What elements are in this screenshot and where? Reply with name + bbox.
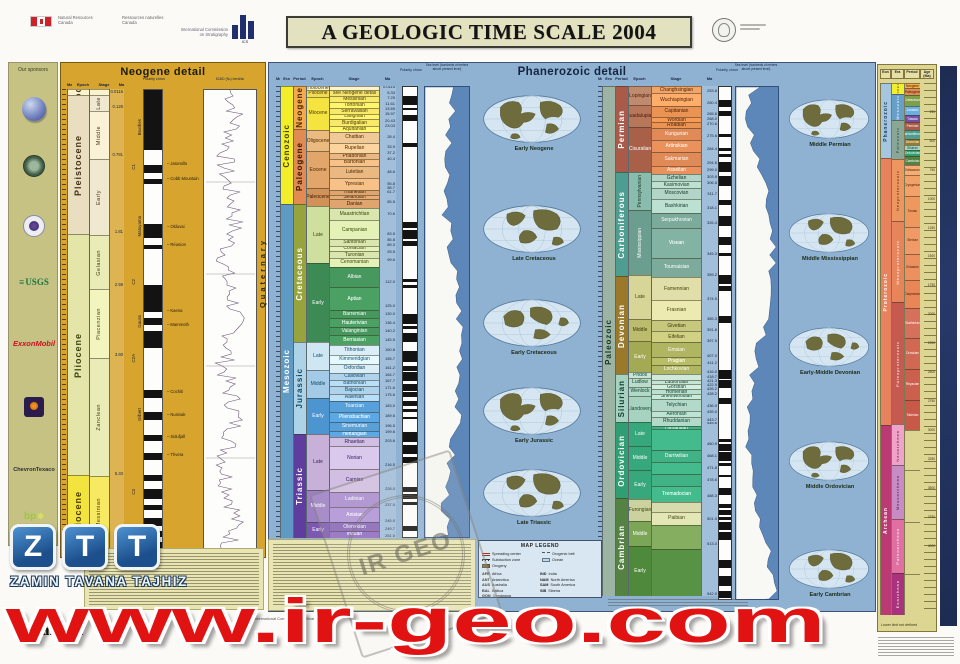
- stage-cell-Sinemurian: Sinemurian: [330, 422, 379, 431]
- polarity-stripe: [719, 463, 731, 466]
- globe-map: [788, 326, 870, 368]
- hdr-stage: Stage: [651, 76, 701, 81]
- epoch-cell-Guadalupian: Guadalupian: [629, 105, 651, 126]
- age-label: 501.0: [702, 508, 718, 520]
- polarity-black-interval: [144, 318, 162, 325]
- chron-Gilbert: Gilbert: [137, 408, 142, 421]
- sponsor-IUGS-logo: [9, 97, 59, 121]
- age-label: 299.0: [702, 165, 718, 172]
- ztt-letter: Z: [24, 530, 42, 564]
- epoch-cell-Lopingian: Lopingian: [629, 86, 651, 105]
- sponsor-ChevronTexaco-logo: ChevronTexaco: [9, 467, 59, 473]
- paleogeography-globe: [478, 298, 586, 353]
- age-tick-2500: 2500: [928, 370, 935, 374]
- age-label: 294.6: [702, 151, 718, 165]
- polarity-stripe: [719, 560, 731, 567]
- age-label: 155.7: [380, 352, 396, 361]
- polarity-stripe: [403, 285, 417, 288]
- age-tick-1000: 1000: [928, 197, 935, 201]
- age-label: 265.8: [702, 105, 718, 116]
- stage-cell-unnamed: [652, 525, 701, 549]
- event-Réunion: Réunion: [167, 242, 186, 247]
- hdr-ma2: Ma: [379, 76, 396, 81]
- stage-cell-Norian: Norian: [330, 446, 379, 469]
- age-label: 99.6: [380, 254, 396, 262]
- age-label: 189.6: [380, 408, 396, 418]
- globe-map: [478, 468, 586, 518]
- era-cell-Mesoarchean: Mesoarchean: [892, 465, 904, 519]
- period-cell-Cryogenian: Cryogenian: [905, 175, 920, 196]
- geological-survey-text: [740, 24, 766, 32]
- poster-title: A GEOLOGIC TIME SCALE 2004: [322, 20, 657, 45]
- hdr-period: Period: [904, 69, 920, 79]
- polarity-stripe: [403, 409, 417, 412]
- age-label: 33.9: [380, 139, 396, 149]
- paleogeography-globe: [788, 326, 870, 373]
- polarity-stripe: [403, 366, 417, 371]
- summary-era-column: CenozoicMesozoicPaleozoicNeoproterozoicM…: [891, 83, 904, 615]
- chron-label-C2: C2: [131, 279, 136, 285]
- period-cell-Calymmian: Calymmian: [905, 280, 920, 308]
- paleogeography-globe: [478, 204, 586, 259]
- ics-abbr: ICS: [232, 39, 258, 44]
- stage-cell-Aptian: Aptian: [330, 287, 379, 310]
- age-tick-750: 750: [930, 168, 935, 172]
- cenozoic-mesozoic-column-group: CenozoicMesozoicNeogenePaleogeneCretaceo…: [276, 86, 396, 538]
- period-cell-Orosirian: Orosirian: [905, 338, 920, 369]
- hdr-period: Period: [293, 76, 306, 81]
- polarity-stripe: [719, 154, 731, 157]
- sealevel-curve-2: [735, 86, 779, 600]
- epoch-cell-Eocene: Eocene: [307, 151, 329, 188]
- stage-cell-Tithonian: Tithonian: [330, 345, 379, 355]
- stage-cell-Toarcian: Toarcian: [330, 401, 379, 412]
- square-icon: [24, 397, 44, 417]
- period-cell-Rhyacian: Rhyacian: [905, 369, 920, 400]
- epoch-cell-Late: Late: [307, 206, 329, 263]
- epoch-cell-Middle: Middle: [307, 370, 329, 397]
- g-right-age-column: 253.8260.4265.8268.0270.6275.6284.4294.6…: [701, 86, 718, 596]
- agency-name-en: Natural Resources Canada: [58, 15, 93, 26]
- neogene-panel-title: Neogene detail: [61, 63, 265, 78]
- period-cell-Tonian: Tonian: [905, 196, 920, 227]
- polarity-barcode-2: [718, 86, 732, 600]
- hdr-epoch: Epoch: [628, 76, 651, 81]
- stage-cell-Chattian: Chattian: [330, 132, 379, 143]
- age-label: 112.0: [380, 262, 396, 284]
- stage-cell-Burdigalian: Burdigalian: [330, 119, 379, 126]
- stage-cell-Late: Late: [90, 95, 109, 111]
- g-right-era-column: Paleozoic: [602, 86, 615, 596]
- neogene-curve-header: δ18O (‰) benthic: [203, 77, 257, 81]
- polarity-stripe: [719, 488, 731, 496]
- age-tick-250: 250: [930, 110, 935, 114]
- epoch-cell-Middle: Middle: [629, 521, 651, 546]
- polarity-stripe: [403, 279, 417, 283]
- polarity-stripe: [403, 96, 417, 105]
- era-cell-Eoarchean: Eoarchean: [892, 573, 904, 615]
- globe-map: [788, 212, 870, 254]
- lower-limit-note: Lower limit not defined: [881, 623, 921, 627]
- stage-cell-Asselian: Asselian: [652, 166, 701, 173]
- col-header-stage: Stage: [94, 82, 114, 87]
- paleogeography-globe: [788, 212, 870, 259]
- stage-cell-Albian: Albian: [330, 267, 379, 288]
- col-header-epoch: Epoch: [72, 82, 94, 87]
- globe-icon: [22, 97, 46, 121]
- epoch-cell-Mississippian: Mississippian: [629, 210, 651, 275]
- polarity-stripe: [719, 100, 731, 107]
- age-label: 175.6: [380, 390, 396, 397]
- age-label: 28.4: [380, 128, 396, 139]
- age-label: 20.43: [380, 116, 396, 123]
- seal-dark-icon: [23, 155, 45, 177]
- stage-cell-Bashkirian: Bashkirian: [652, 199, 701, 213]
- age-label: 48.6: [380, 161, 396, 174]
- polarity-stripe: [403, 401, 417, 406]
- polarity-stripe: [719, 200, 731, 206]
- polarity-stripe: [719, 134, 731, 137]
- chron-Brunhes: Brunhes: [137, 119, 142, 135]
- stage-cell-Tremadocian: Tremadocian: [652, 486, 701, 502]
- epoch-cell-Early: Early: [629, 470, 651, 498]
- age-label: 471.8: [702, 458, 718, 470]
- sponsor-USGS-logo: USGS: [9, 277, 59, 287]
- stage-cell-Zanclean: Zanclean: [90, 358, 109, 476]
- age-label: 164.7: [380, 370, 396, 377]
- stage-cell-Pragian: Pragian: [652, 357, 701, 364]
- canada-flag-icon: [30, 16, 52, 27]
- hdr-ma2: Ma: [701, 76, 718, 81]
- stage-cell-Lochkovian: Lochkovian: [652, 365, 701, 374]
- event-Jaramillo: Jaramillo: [167, 161, 187, 166]
- ztt-tile-t2: T: [114, 524, 160, 570]
- paleogeography-globe: [788, 440, 870, 487]
- polarity-black-interval: [144, 179, 162, 184]
- summary-columns: PhanerozoicProterozoicArcheanCenozoicMes…: [880, 83, 920, 615]
- epoch-cell-Furongian: Furongian: [629, 499, 651, 521]
- hdr-age: Age (Ma): [920, 69, 934, 79]
- age-tick-2000: 2000: [928, 312, 935, 316]
- era-cell-Cenozoic: Cenozoic: [281, 86, 293, 204]
- g-left-era-column: CenozoicMesozoic: [280, 86, 293, 538]
- age-label: 253.8: [702, 86, 718, 93]
- age-label: 326.4: [702, 210, 718, 225]
- period-cell-Stenian: Stenian: [905, 227, 920, 254]
- isotope-curve-box: [203, 89, 257, 549]
- age-label: 407.0: [702, 343, 718, 358]
- age-label: 171.6: [380, 383, 396, 390]
- globe-map: [788, 98, 870, 140]
- isotope-curve-plot: [204, 90, 257, 549]
- sponsor-bp-logo: bp: [9, 511, 59, 522]
- map-legend-symbols: Spreading centerOrogenic beltSubduction …: [482, 551, 598, 569]
- age-tick-3500: 3500: [928, 486, 935, 490]
- stage-cell-Paibian: Paibian: [652, 512, 701, 524]
- era-cell-Mesoproterozoic: Mesoproterozoic: [892, 221, 904, 302]
- stage-cell-Valanginian: Valanginian: [330, 327, 379, 335]
- epoch-cell-Pliocene: Pliocene: [307, 90, 329, 97]
- legend-symbol-ocean: Ocean: [542, 557, 598, 563]
- polarity-stripe: [719, 176, 731, 186]
- hdr-epoch: Epoch: [306, 76, 329, 81]
- summary-period-column: NeogenePaleogeneCretaceousJurassicTriass…: [904, 83, 920, 615]
- polarity-black-interval: [144, 285, 162, 312]
- stage-cell-unnamed: [652, 429, 701, 449]
- era-cell-Paleozoic: Paleozoic: [603, 86, 615, 596]
- hdr-period: Period: [615, 76, 628, 81]
- age-label: 303.9: [702, 172, 718, 179]
- globe-label: Early Jurassic: [478, 438, 590, 444]
- epoch-cell-Early: Early: [307, 263, 329, 342]
- stage-cell-Capitanian: Capitanian: [652, 106, 701, 117]
- stage-cell-Ypresian: Ypresian: [330, 178, 379, 190]
- polarity-stripe: [719, 162, 731, 172]
- period-cell-Devonian: Devonian: [616, 276, 628, 374]
- ma-tick-scale: [62, 89, 66, 549]
- stage-cell-Gelasian: Gelasian: [90, 235, 109, 289]
- event-Nunivak: Nunivak: [167, 412, 185, 417]
- epoch-cell-Middle: Middle: [629, 319, 651, 341]
- age-tick-3750: 3750: [928, 515, 935, 519]
- neogene-polarity-header: Polarity chron: [137, 77, 171, 81]
- period-cell-Siderian: Siderian: [905, 400, 920, 430]
- age-label: 140.2: [380, 325, 396, 333]
- epoch-cell-Llandovery: Llandovery: [629, 396, 651, 422]
- epoch-cell-Early: Early: [629, 341, 651, 372]
- period-cell-Ectasian: Ectasian: [905, 254, 920, 281]
- period-cell-Jurassic: Jurassic: [294, 342, 306, 433]
- polarity-black-interval: [144, 505, 162, 510]
- polarity-stripe: [719, 148, 731, 151]
- globe-label: Middle Permian: [788, 142, 872, 148]
- polarity-stripe: [403, 392, 417, 397]
- polarity-stripe: [719, 380, 731, 388]
- epoch-cell-Late: Late: [307, 434, 329, 490]
- era-cell-Mesozoic: Mesozoic: [281, 204, 293, 538]
- polarity-stripe: [719, 452, 731, 461]
- age-label: 284.4: [702, 138, 718, 150]
- age-label: 416.0: [702, 365, 718, 374]
- stage-cell-Aalenian: Aalenian: [330, 394, 379, 401]
- era-cell-Paleozoic: Paleozoic: [892, 120, 904, 159]
- polarity-stripe: [719, 532, 731, 540]
- hdr-era: Era: [280, 76, 293, 81]
- stage-cell-Eifelian: Eifelian: [652, 331, 701, 342]
- map-legend-title: MAP LEGEND: [482, 543, 598, 549]
- polarity-stripe: [403, 143, 417, 147]
- age-label: 70.6: [380, 204, 396, 216]
- globe-map: [478, 298, 586, 348]
- polarity-black-interval: [144, 475, 162, 481]
- age-label: 196.5: [380, 418, 396, 427]
- age-label: 3.60: [110, 287, 124, 356]
- stage-cell-Gzhelian: Gzhelian: [652, 174, 701, 181]
- polarity-stripe: [719, 475, 731, 478]
- chron-name-column: BrunhesC1MatuyamaC2GaussC2AGilbertC3: [131, 89, 143, 549]
- polarity-stripe: [719, 439, 731, 442]
- globe-map: [478, 204, 586, 254]
- period-cell-Neogene: Neogene: [294, 86, 306, 129]
- g-left-epo-column: HolocenePlioceneMioceneOligoceneEocenePa…: [306, 86, 329, 538]
- eon-cell-Phanerozoic: Phanerozoic: [881, 83, 891, 158]
- geologic-time-scale-poster: Natural Resources Canada Ressources natu…: [0, 0, 960, 664]
- globe-label: Early-Middle Devonian: [788, 370, 872, 376]
- age-label: 161.2: [380, 361, 396, 370]
- website-watermark: www.ir-geo.com: [6, 586, 826, 657]
- stage-cell-Changhsingian: Changhsingian: [652, 86, 701, 93]
- age-label: 136.4: [380, 316, 396, 325]
- age-label: 0.781: [110, 109, 124, 157]
- right-strat-headers: Ma Era Period Epoch Stage Ma: [598, 76, 718, 81]
- stage-cell-Tournaisian: Tournaisian: [652, 258, 701, 278]
- stage-cell-Bajocian: Bajocian: [330, 386, 379, 393]
- ics-logo: ICS: [232, 13, 258, 44]
- globe-label: Early Cretaceous: [478, 350, 590, 356]
- event-Cochiti: Cochiti: [167, 389, 183, 394]
- polarity-stripe: [719, 576, 731, 586]
- era-cell-Neoarchean: Neoarchean: [892, 424, 904, 465]
- age-label: 65.5: [380, 194, 396, 203]
- period-cell-Statherian: Statherian: [905, 308, 920, 338]
- stage-cell-Wuchiapingian: Wuchiapingian: [652, 93, 701, 105]
- sponsor-seal-light-logo: [9, 215, 59, 237]
- polarity-stripe: [719, 522, 731, 530]
- age-label: 5.33: [110, 357, 124, 476]
- stage-cell-Early: Early: [90, 159, 109, 235]
- epoch-cell-Late: Late: [629, 275, 651, 319]
- age-label: 513.0: [702, 521, 718, 546]
- period-cell-unnamed: [905, 574, 920, 615]
- polarity-stripe: [719, 517, 731, 520]
- stage-cell-Moscovian: Moscovian: [652, 188, 701, 199]
- paleozoic-column-group: PaleozoicPermianCarboniferousDevonianSil…: [598, 86, 718, 596]
- age-label: 145.5: [380, 333, 396, 342]
- sealevel-header-2: Sea level (hundreds of meters above pres…: [733, 64, 779, 71]
- ztt-tiles: Z T T: [10, 524, 230, 570]
- eon-cell-Archean: Archean: [881, 425, 891, 615]
- polarity-stripe: [719, 237, 731, 245]
- poster-right-edge: [940, 66, 957, 626]
- polarity-stripe: [403, 115, 417, 121]
- polarity-stripe: [403, 384, 417, 391]
- period-cell-Ediacaran: Ediacaran: [905, 165, 920, 175]
- period-cell-Permian: Permian: [905, 122, 920, 130]
- paleogeography-globe: [478, 94, 586, 149]
- age-label: 93.5: [380, 247, 396, 254]
- polarity-stripe: [719, 286, 731, 291]
- period-cell-Cambrian: Cambrian: [616, 498, 628, 596]
- stage-cell-Rhaetian: Rhaetian: [330, 437, 379, 446]
- age-label: 130.0: [380, 308, 396, 316]
- period-cell-Triassic: Triassic: [905, 115, 920, 123]
- age-label: 436.0: [702, 396, 718, 408]
- epoch-cell-Paleocene: Paleocene: [307, 188, 329, 206]
- age-label: 385.3: [702, 301, 718, 321]
- polarity-pattern-column: [143, 89, 163, 549]
- epoch-cell-Ludlow: Ludlow: [629, 378, 651, 387]
- polarity-stripe: [719, 510, 731, 516]
- sponsors-panel: Our sponsors USGSExxonMobilChevronTexaco…: [8, 62, 58, 546]
- polarity-stripe: [403, 230, 417, 239]
- period-cell-Silurian: Silurian: [616, 374, 628, 422]
- age-label: 2.59: [110, 234, 124, 288]
- chron-Gauss: Gauss: [137, 315, 142, 328]
- period-cell-Triassic: Triassic: [294, 434, 306, 538]
- stage-cell-Callovian: Callovian: [330, 373, 379, 380]
- period-cell-Jurassic: Jurassic: [905, 106, 920, 115]
- globe-label: Middle Ordovician: [788, 484, 872, 490]
- age-tick-2250: 2250: [928, 341, 935, 345]
- g-right-per-column: PermianCarboniferousDevonianSilurianOrdo…: [615, 86, 628, 596]
- age-label: 203.6: [380, 434, 396, 443]
- event-Kaena: Kaena: [167, 308, 182, 313]
- age-label: 345.3: [702, 225, 718, 256]
- ocean-icon: [542, 558, 550, 562]
- polarity-stripe: [403, 314, 417, 323]
- stage-cell-Maastrichtian: Maastrichtian: [330, 208, 379, 220]
- age-label: 397.5: [702, 332, 718, 343]
- polarity-stripe: [403, 333, 417, 342]
- age-label: 411.2: [702, 358, 718, 365]
- age-scale-column: 2505007501000125015001750200022502500275…: [924, 83, 936, 615]
- hdr-eon: Eon: [880, 69, 891, 79]
- polarity-stripe: [719, 504, 731, 508]
- polarity-black-interval: [144, 245, 162, 249]
- globe-label: Middle Mississippian: [788, 256, 872, 262]
- stage-cell-Campanian: Campanian: [330, 220, 379, 239]
- g-left-per-column: NeogenePaleogeneCretaceousJurassicTriass…: [293, 86, 306, 538]
- polarity-black-interval: [144, 435, 162, 441]
- globe-label: Late Triassic: [478, 520, 590, 526]
- globe-map: [478, 386, 586, 436]
- age-label: 125.0: [380, 284, 396, 308]
- paleogeography-globe: [788, 98, 870, 145]
- period-cell-Cambrian: Cambrian: [905, 156, 920, 165]
- ics-name: International Commission on Stratigraphy: [148, 27, 228, 38]
- g-right-stg-column: ChanghsingianWuchiapingianCapitanianWord…: [651, 86, 701, 596]
- stage-cell-Cenomanian: Cenomanian: [330, 258, 379, 266]
- globe-map: [788, 440, 870, 482]
- ztt-logo-block: Z T T ZAMIN TAVANA TAJHIZ: [10, 524, 230, 589]
- eon-era-period-summary-panel: Eon Era Period Age (Ma) PhanerozoicProte…: [877, 64, 937, 632]
- age-label: 488.3: [702, 482, 718, 498]
- sponsor-logo-list: USGSExxonMobilChevronTexacobp: [9, 63, 57, 545]
- stage-cell-Barremian: Barremian: [330, 310, 379, 318]
- orogenic-belt-icon: [542, 552, 550, 556]
- period-cell-Ordovician: Ordovician: [616, 422, 628, 499]
- polarity-black-interval: [144, 489, 162, 499]
- stage-cell-unnamed: [652, 502, 701, 512]
- stage-cell-Artinskian: Artinskian: [652, 140, 701, 152]
- period-cell-Carboniferous: Carboniferous: [905, 130, 920, 139]
- globe-label: Early Neogene: [478, 146, 590, 152]
- period-cell-unnamed: [905, 470, 920, 522]
- sponsor-ExxonMobil-logo: ExxonMobil: [9, 339, 59, 348]
- left-strat-headers: Ma Era Period Epoch Stage Ma: [276, 76, 396, 81]
- era-cell-Cenozoic: Cenozoic: [892, 83, 904, 94]
- polarity-stripe: [719, 370, 731, 379]
- legend-symbol-orogeny: Orogeny: [482, 563, 538, 569]
- epoch-cell-Pennsylvanian: Pennsylvanian: [629, 172, 651, 210]
- polarity-event-labels: JaramilloCobb MountainOlduvaiRéunionKaen…: [165, 89, 201, 549]
- stage-cell-Rhuddanian: Rhuddanian: [652, 417, 701, 425]
- quaternary-bracket: Quaternary: [257, 123, 267, 423]
- stage-cell-Middle: Middle: [90, 111, 109, 159]
- age-label: 443.7: [702, 414, 718, 422]
- summary-headers: Eon Era Period Age (Ma): [880, 69, 934, 79]
- age-label: 460.9: [702, 425, 718, 446]
